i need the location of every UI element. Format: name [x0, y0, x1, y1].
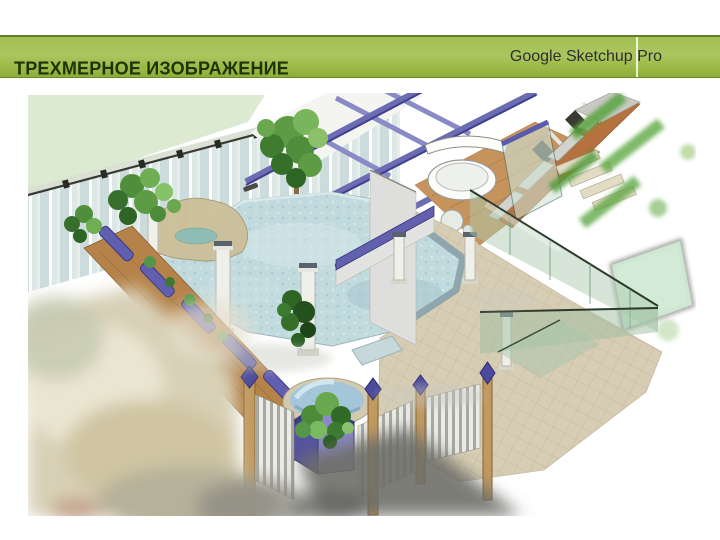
header-divider [636, 37, 638, 77]
slide-subtitle: Google Sketchup Pro [510, 48, 662, 66]
rendering-image [28, 93, 696, 516]
page-title: ТРЕХМЕРНОЕ ИЗОБРАЖЕНИЕ [14, 59, 289, 80]
slide-canvas: ТРЕХМЕРНОЕ ИЗОБРАЖЕНИЕ Google Sketchup P… [0, 0, 720, 540]
slide-header: ТРЕХМЕРНОЕ ИЗОБРАЖЕНИЕ Google Sketchup P… [0, 35, 720, 78]
